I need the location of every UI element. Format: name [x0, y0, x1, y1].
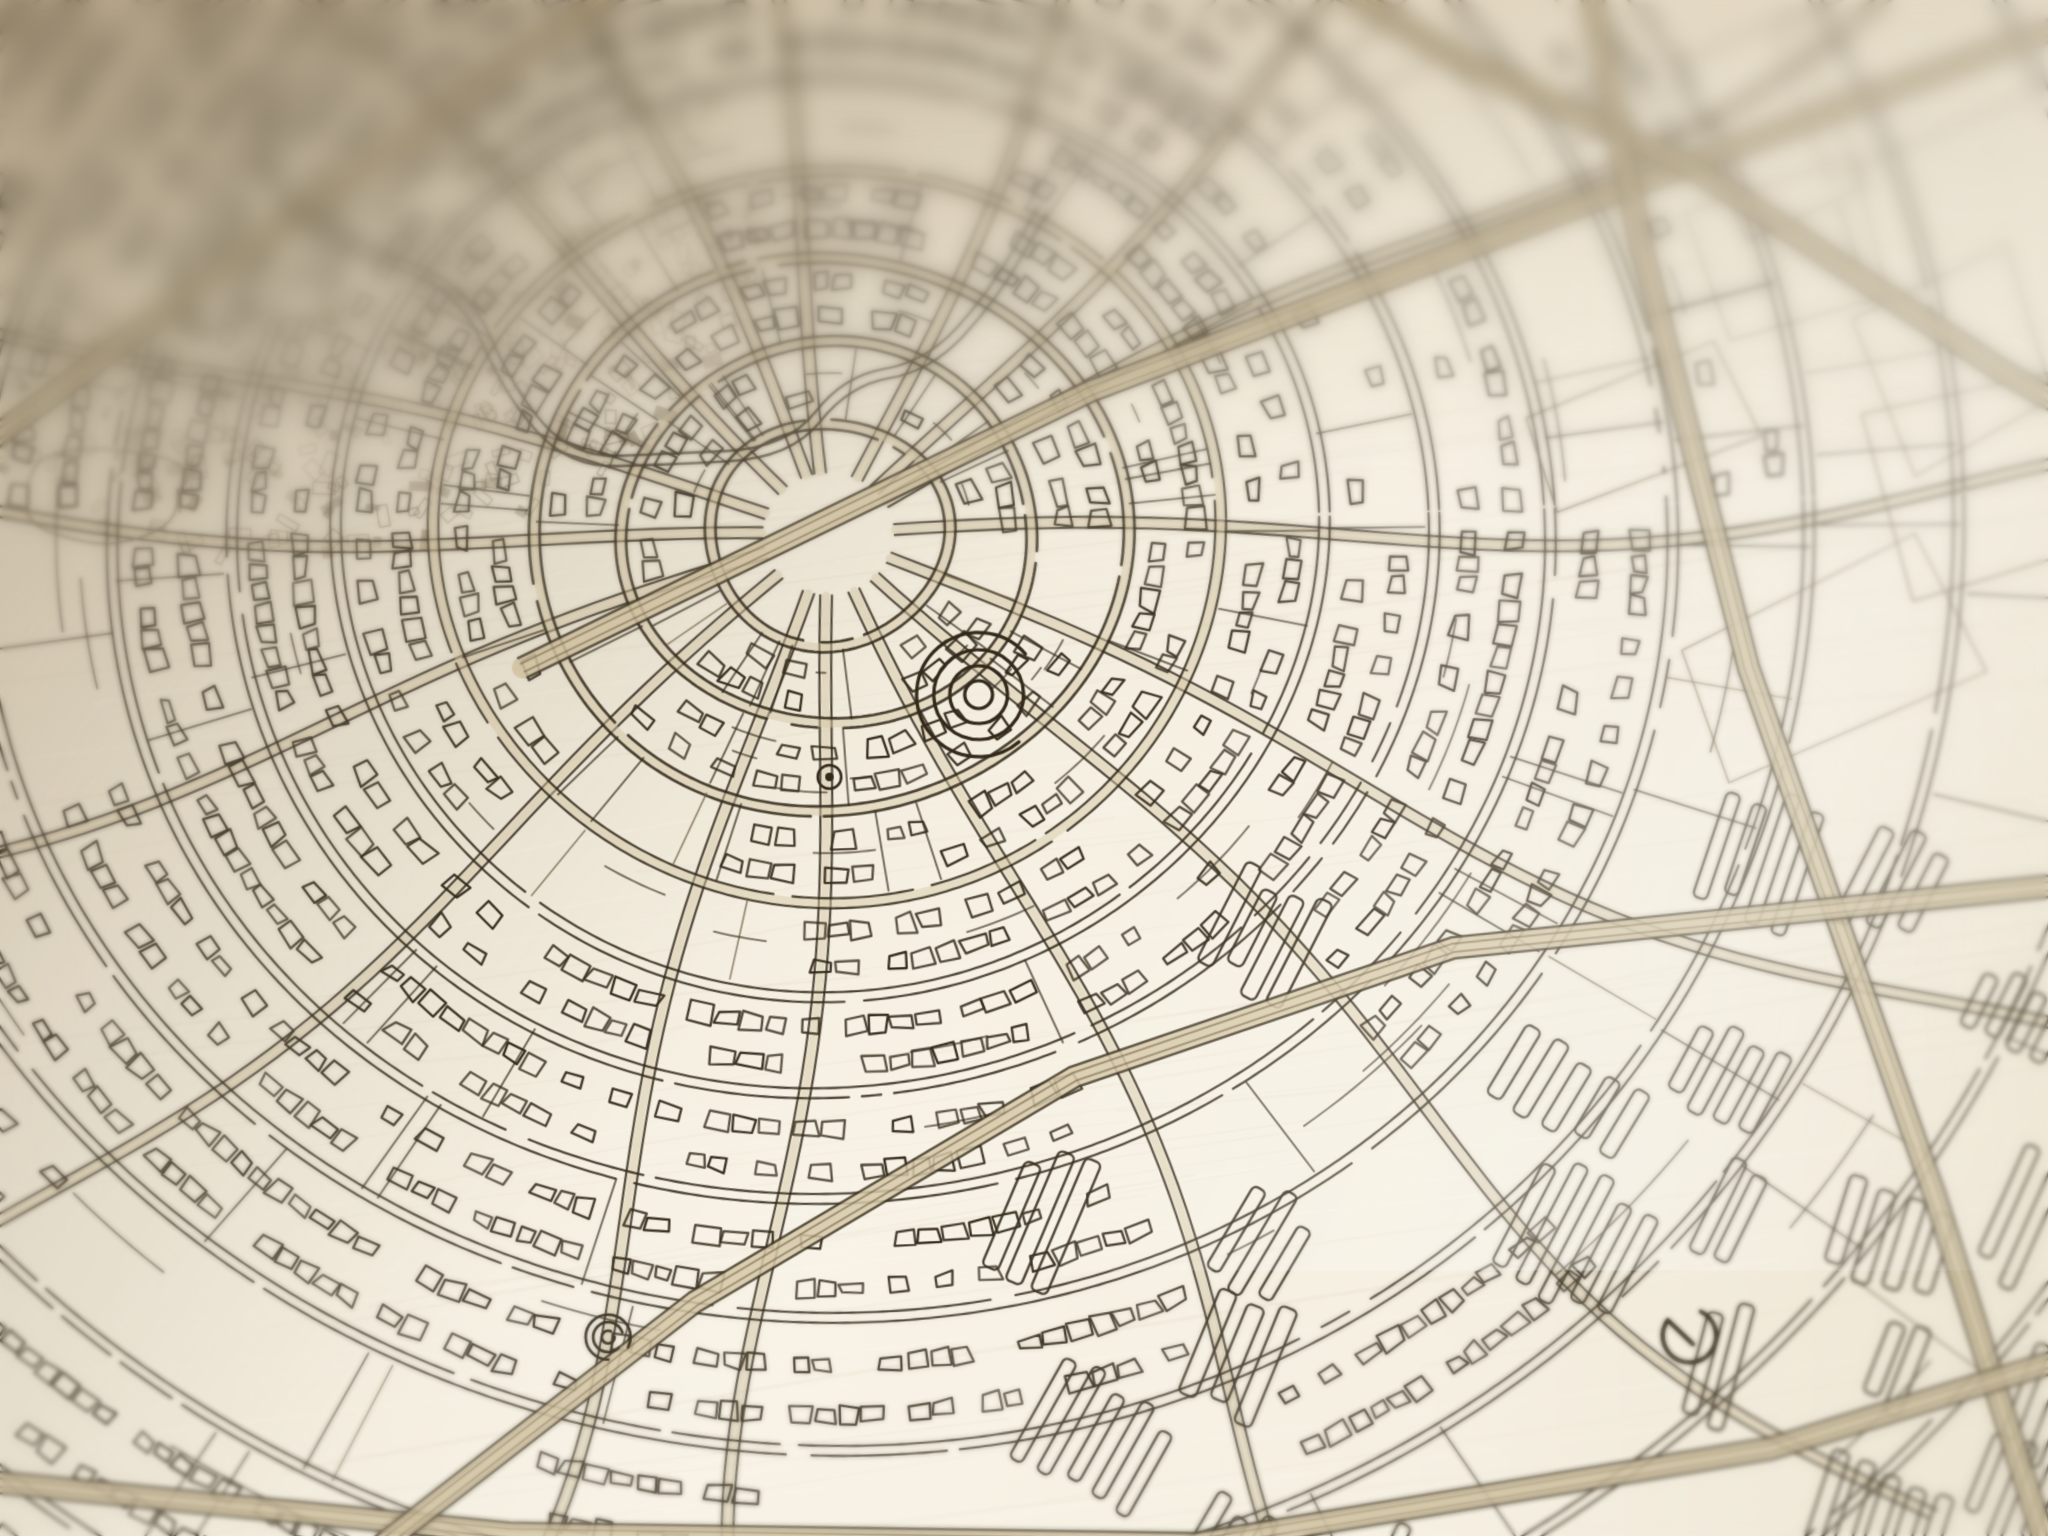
photo-wooden-city-map — [0, 0, 2048, 1536]
engraved-map-canvas — [0, 0, 2048, 1536]
map-tilt-wrapper — [0, 0, 2048, 1536]
